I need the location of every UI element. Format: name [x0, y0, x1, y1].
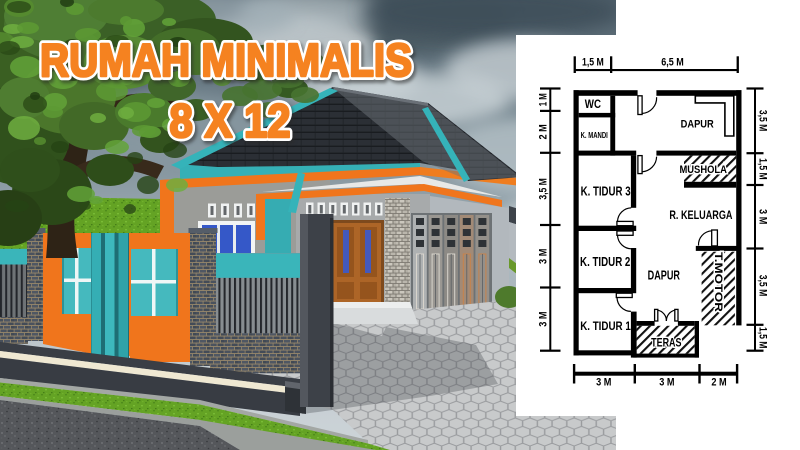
svg-text:K. TIDUR 3: K. TIDUR 3: [581, 184, 631, 198]
svg-text:3 M: 3 M: [537, 249, 549, 264]
svg-text:WC: WC: [585, 99, 601, 111]
svg-text:2 M: 2 M: [711, 377, 726, 389]
svg-text:2 M: 2 M: [537, 124, 549, 139]
svg-text:T.MOTOR: T.MOTOR: [712, 252, 724, 312]
svg-text:3 M: 3 M: [537, 311, 549, 326]
svg-text:DAPUR: DAPUR: [681, 119, 714, 131]
svg-text:K. TIDUR 1: K. TIDUR 1: [580, 319, 631, 333]
svg-text:3,5 M: 3,5 M: [757, 110, 769, 132]
svg-text:3 M: 3 M: [757, 209, 769, 224]
svg-text:1,5 M: 1,5 M: [757, 327, 769, 349]
svg-text:1 M: 1 M: [537, 93, 549, 106]
svg-text:1,5 M: 1,5 M: [757, 158, 769, 180]
svg-text:3,5 M: 3,5 M: [537, 178, 549, 200]
svg-text:R. KELUARGA: R. KELUARGA: [669, 208, 732, 222]
svg-text:8 X 12: 8 X 12: [170, 94, 291, 147]
svg-text:3,5 M: 3,5 M: [757, 275, 769, 297]
svg-text:MUSHOLA: MUSHOLA: [679, 164, 727, 176]
svg-text:DAPUR: DAPUR: [648, 268, 681, 283]
svg-text:K. TIDUR 2: K. TIDUR 2: [580, 255, 630, 269]
svg-text:3 M: 3 M: [659, 377, 674, 389]
svg-text:K. MANDI: K. MANDI: [581, 130, 608, 140]
svg-text:1,5 M: 1,5 M: [582, 57, 604, 69]
svg-text:TERAS: TERAS: [651, 335, 681, 349]
svg-text:6,5 M: 6,5 M: [661, 57, 684, 69]
svg-text:3 M: 3 M: [596, 377, 611, 389]
svg-text:RUMAH MINIMALIS: RUMAH MINIMALIS: [40, 34, 412, 86]
